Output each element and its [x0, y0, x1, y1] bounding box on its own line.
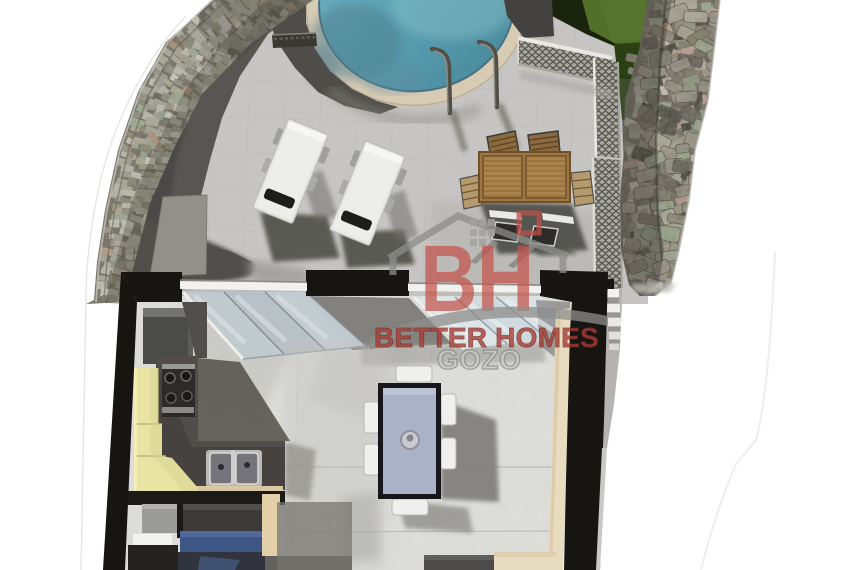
svg-text:GOZO: GOZO: [437, 344, 521, 375]
